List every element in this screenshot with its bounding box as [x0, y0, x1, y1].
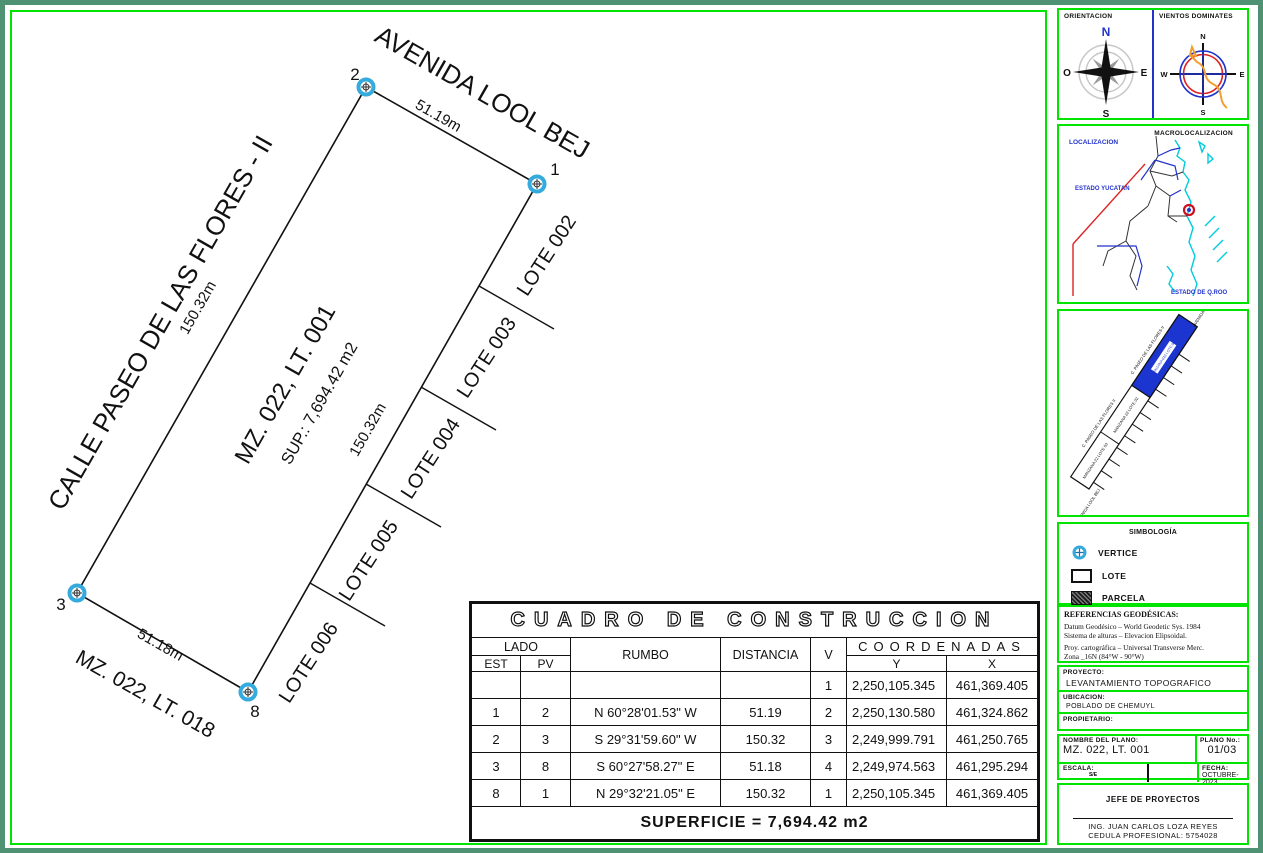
- compass-n-label: N: [1102, 25, 1111, 39]
- referencias-title: REFERENCIAS GEODÉSICAS:: [1064, 610, 1242, 619]
- superficie-total: SUPERFICIE = 7,694.42 m2: [471, 807, 1039, 841]
- wind-e-label: E: [1239, 70, 1244, 79]
- vertex-2-number: 2: [350, 65, 359, 84]
- proyecto-label: PROYECTO:: [1063, 669, 1243, 676]
- cell-pv: 3: [521, 726, 571, 753]
- vertex-marker-icon: [359, 80, 374, 95]
- cell-rumbo: N 60°28'01.53" W: [571, 699, 721, 726]
- macro-title: MACROLOCALIZACION: [1154, 130, 1233, 137]
- coastline-path: [1167, 140, 1227, 296]
- project-info-panel: PROYECTO: LEVANTAMIENTO TOPOGRAFICO UBIC…: [1057, 665, 1249, 731]
- legend-parcela: PARCELA: [1071, 591, 1247, 605]
- vertex-marker-icon: [241, 685, 256, 700]
- ubicacion-row: UBICACION: POBLADO DE CHEMUYL: [1059, 692, 1247, 714]
- compass-s-label: S: [1103, 109, 1110, 118]
- macrolocalizacion-panel: MACROLOCALIZACION: [1057, 124, 1249, 304]
- cell-pv: 2: [521, 699, 571, 726]
- street-label-avenida: AVENIDA LOOL BEJ: [370, 20, 595, 165]
- header-y: Y: [847, 656, 947, 672]
- state-boundary-lines: [1073, 164, 1145, 296]
- cell-y: 2,250,130.580: [847, 699, 947, 726]
- cell-y: 2,250,105.345: [847, 780, 947, 807]
- nombre-plano-value: MZ. 022, LT. 001: [1063, 744, 1195, 756]
- cell-est: 2: [471, 726, 521, 753]
- cell-rumbo: [571, 672, 721, 699]
- nombre-plano-label: NOMBRE DEL PLANO:: [1063, 737, 1195, 744]
- signature-panel: JEFE DE PROYECTOS ING. JUAN CARLOS LOZA …: [1057, 783, 1249, 845]
- cell-pv: [521, 672, 571, 699]
- table-row: 8 1 N 29°32'21.05" E 150.32 1 2,250,105.…: [471, 780, 1039, 807]
- cell-v: 4: [811, 753, 847, 780]
- lot-005-label: LOTE 005: [335, 517, 403, 605]
- header-rumbo: RUMBO: [571, 638, 721, 672]
- signature-line: [1073, 818, 1233, 819]
- compass-e-label: E: [1141, 68, 1148, 79]
- lot-002-label: LOTE 002: [513, 212, 581, 300]
- cell-rumbo: S 60°27'58.27" E: [571, 753, 721, 780]
- vertice-icon: [1071, 544, 1088, 561]
- propietario-label: PROPIETARIO:: [1063, 716, 1243, 723]
- lote-icon: [1071, 569, 1092, 583]
- cell-est: 3: [471, 753, 521, 780]
- wind-rose-icon: N S E W: [1154, 18, 1248, 118]
- cell-x: 461,250.765: [947, 726, 1039, 753]
- micro-map: MANZANA 022 LOTE 001 MANZANA 22 LOTE 02 …: [1059, 311, 1247, 515]
- header-lado: LADO: [471, 638, 571, 656]
- micro-avenida-bottom-label: AVENIDA LOOL BEJ: [1075, 488, 1101, 515]
- vertex-8-number: 8: [250, 702, 259, 721]
- legend-lote: LOTE: [1071, 569, 1247, 583]
- legend-vertice-label: VERTICE: [1098, 548, 1138, 558]
- neighbor-block-label: MZ. 022, LT. 018: [72, 646, 219, 743]
- cell-pv: 8: [521, 753, 571, 780]
- header-distancia: DISTANCIA: [721, 638, 811, 672]
- fecha-label: FECHA:: [1202, 765, 1247, 772]
- cell-x: 461,369.405: [947, 780, 1039, 807]
- wind-w-label: W: [1160, 70, 1168, 79]
- orientation-panel: ORIENTACION N S E O VIENTOS DOMINATES: [1057, 8, 1249, 120]
- table-title-row: CUADRO DE CONSTRUCCION: [471, 603, 1039, 638]
- roads-black: [1103, 136, 1187, 290]
- cell-distancia: 150.32: [721, 780, 811, 807]
- table-row: 1 2 N 60°28'01.53" W 51.19 2 2,250,130.5…: [471, 699, 1039, 726]
- simbologia-panel: SIMBOLOGÍA VERTICE LOTE PARCELA: [1057, 522, 1249, 605]
- escala-label: ESCALA:: [1063, 765, 1197, 772]
- propietario-value: [1063, 723, 1243, 726]
- cell-est: 1: [471, 699, 521, 726]
- vientos-cell: VIENTOS DOMINATES N S E W: [1154, 10, 1247, 118]
- cell-y: 2,249,999.791: [847, 726, 947, 753]
- table-row: 2 3 S 29°31'59.60" W 150.32 3 2,249,999.…: [471, 726, 1039, 753]
- cell-distancia: 150.32: [721, 726, 811, 753]
- propietario-row: PROPIETARIO:: [1059, 714, 1247, 727]
- legend-vertice: VERTICE: [1071, 544, 1247, 561]
- cell-est: 8: [471, 780, 521, 807]
- compass-rose-icon: N S E O: [1059, 18, 1153, 118]
- title-block-panel: NOMBRE DEL PLANO: MZ. 022, LT. 001 PLANO…: [1057, 734, 1249, 780]
- referencias-panel: REFERENCIAS GEODÉSICAS: Datum Geodésico …: [1057, 605, 1249, 663]
- cell-v: 1: [811, 780, 847, 807]
- micro-avenida-top-label: AVENIDA LOOL BEJ: [1191, 311, 1217, 327]
- escala-divider: [1147, 764, 1149, 782]
- referencias-line: Zona _16N (84°W - 90°W): [1064, 653, 1242, 662]
- plano-name-row: NOMBRE DEL PLANO: MZ. 022, LT. 001 PLANO…: [1059, 736, 1247, 764]
- cell-v: 1: [811, 672, 847, 699]
- header-coordenadas: COORDENADAS: [847, 638, 1039, 656]
- table-row: 1 2,250,105.345 461,369.405: [471, 672, 1039, 699]
- estado-yucatan-label: ESTADO YUCATAN: [1075, 186, 1130, 192]
- referencias-line: Sistema de alturas – Elevacion Elipsoida…: [1064, 632, 1242, 641]
- compass-o-label: O: [1063, 68, 1071, 79]
- cell-x: 461,324.862: [947, 699, 1039, 726]
- legend-parcela-label: PARCELA: [1102, 593, 1145, 603]
- table-title: CUADRO DE CONSTRUCCION: [471, 603, 1039, 638]
- construction-table: CUADRO DE CONSTRUCCION LADO RUMBO DISTAN…: [469, 601, 1040, 842]
- roads-blue: [1097, 148, 1181, 286]
- table-footer-row: SUPERFICIE = 7,694.42 m2: [471, 807, 1039, 841]
- engineer-cedula: CEDULA PROFESIONAL: 5754028: [1059, 831, 1247, 840]
- cell-distancia: 51.19: [721, 699, 811, 726]
- cell-pv: 1: [521, 780, 571, 807]
- header-pv: PV: [521, 656, 571, 672]
- header-est: EST: [471, 656, 521, 672]
- parcela-icon: [1071, 591, 1092, 605]
- plano-number-cell: PLANO No.: 01/03: [1197, 736, 1247, 762]
- microlocalizacion-panel: MANZANA 022 LOTE 001 MANZANA 22 LOTE 02 …: [1057, 309, 1249, 517]
- lot-004-label: LOTE 004: [397, 415, 465, 503]
- cell-rumbo: N 29°32'21.05" E: [571, 780, 721, 807]
- escala-fecha-row: ESCALA: S/E FECHA: OCTUBRE-2023: [1059, 764, 1247, 782]
- jefe-title: JEFE DE PROYECTOS: [1059, 795, 1247, 804]
- vertex-marker-icon: [70, 586, 85, 601]
- ubicacion-label: UBICACION:: [1063, 694, 1243, 701]
- dim-right-label: 150.32m: [346, 400, 390, 459]
- cell-x: 461,295.294: [947, 753, 1039, 780]
- macro-map: LOCALIZACION ESTADO YUCATAN ESTADO DE Q.…: [1059, 126, 1247, 302]
- vertex-marker-icon: [530, 177, 545, 192]
- dim-top-label: 51.19m: [412, 96, 464, 136]
- cell-v: 2: [811, 699, 847, 726]
- legend-lote-label: LOTE: [1102, 571, 1126, 581]
- table-row: 3 8 S 60°27'58.27" E 51.18 4 2,249,974.5…: [471, 753, 1039, 780]
- engineer-name: ING. JUAN CARLOS LOZA REYES: [1059, 822, 1247, 831]
- orientacion-cell: ORIENTACION N S E O: [1059, 10, 1154, 118]
- wind-n-label: N: [1200, 32, 1205, 41]
- cell-rumbo: S 29°31'59.60" W: [571, 726, 721, 753]
- cell-y: 2,249,974.563: [847, 753, 947, 780]
- ubicacion-value: POBLADO DE CHEMUYL: [1063, 701, 1243, 711]
- lot-003-label: LOTE 003: [453, 314, 521, 402]
- cell-est: [471, 672, 521, 699]
- cell-distancia: 51.18: [721, 753, 811, 780]
- table-header-row: LADO RUMBO DISTANCIA V COORDENADAS: [471, 638, 1039, 656]
- simbologia-title: SIMBOLOGÍA: [1059, 529, 1247, 536]
- plano-num-value: 01/03: [1197, 744, 1247, 756]
- survey-plan-sheet: { "drawing": { "street_top": "AVENIDA LO…: [0, 0, 1263, 853]
- proyecto-value: LEVANTAMIENTO TOPOGRAFICO: [1063, 676, 1243, 689]
- header-x: X: [947, 656, 1039, 672]
- dim-bottom-label: 51.18m: [134, 625, 186, 665]
- escala-cell: ESCALA: S/E: [1059, 764, 1197, 782]
- plano-name-cell: NOMBRE DEL PLANO: MZ. 022, LT. 001: [1059, 736, 1197, 762]
- header-v: V: [811, 638, 847, 672]
- estado-qroo-label: ESTADO DE Q.ROO: [1171, 290, 1228, 296]
- vertex-3-number: 3: [56, 595, 65, 614]
- cell-v: 3: [811, 726, 847, 753]
- plano-num-label: PLANO No.:: [1197, 737, 1247, 744]
- escala-value: S/E: [1063, 772, 1123, 778]
- fecha-cell: FECHA: OCTUBRE-2023: [1197, 764, 1247, 782]
- cell-x: 461,369.405: [947, 672, 1039, 699]
- cell-y: 2,250,105.345: [847, 672, 947, 699]
- lot-006-label: LOTE 006: [275, 619, 343, 707]
- cell-distancia: [721, 672, 811, 699]
- vertex-1-number: 1: [550, 160, 559, 179]
- proyecto-row: PROYECTO: LEVANTAMIENTO TOPOGRAFICO: [1059, 667, 1247, 692]
- localizacion-label: LOCALIZACION: [1069, 139, 1118, 146]
- wind-s-label: S: [1200, 108, 1205, 117]
